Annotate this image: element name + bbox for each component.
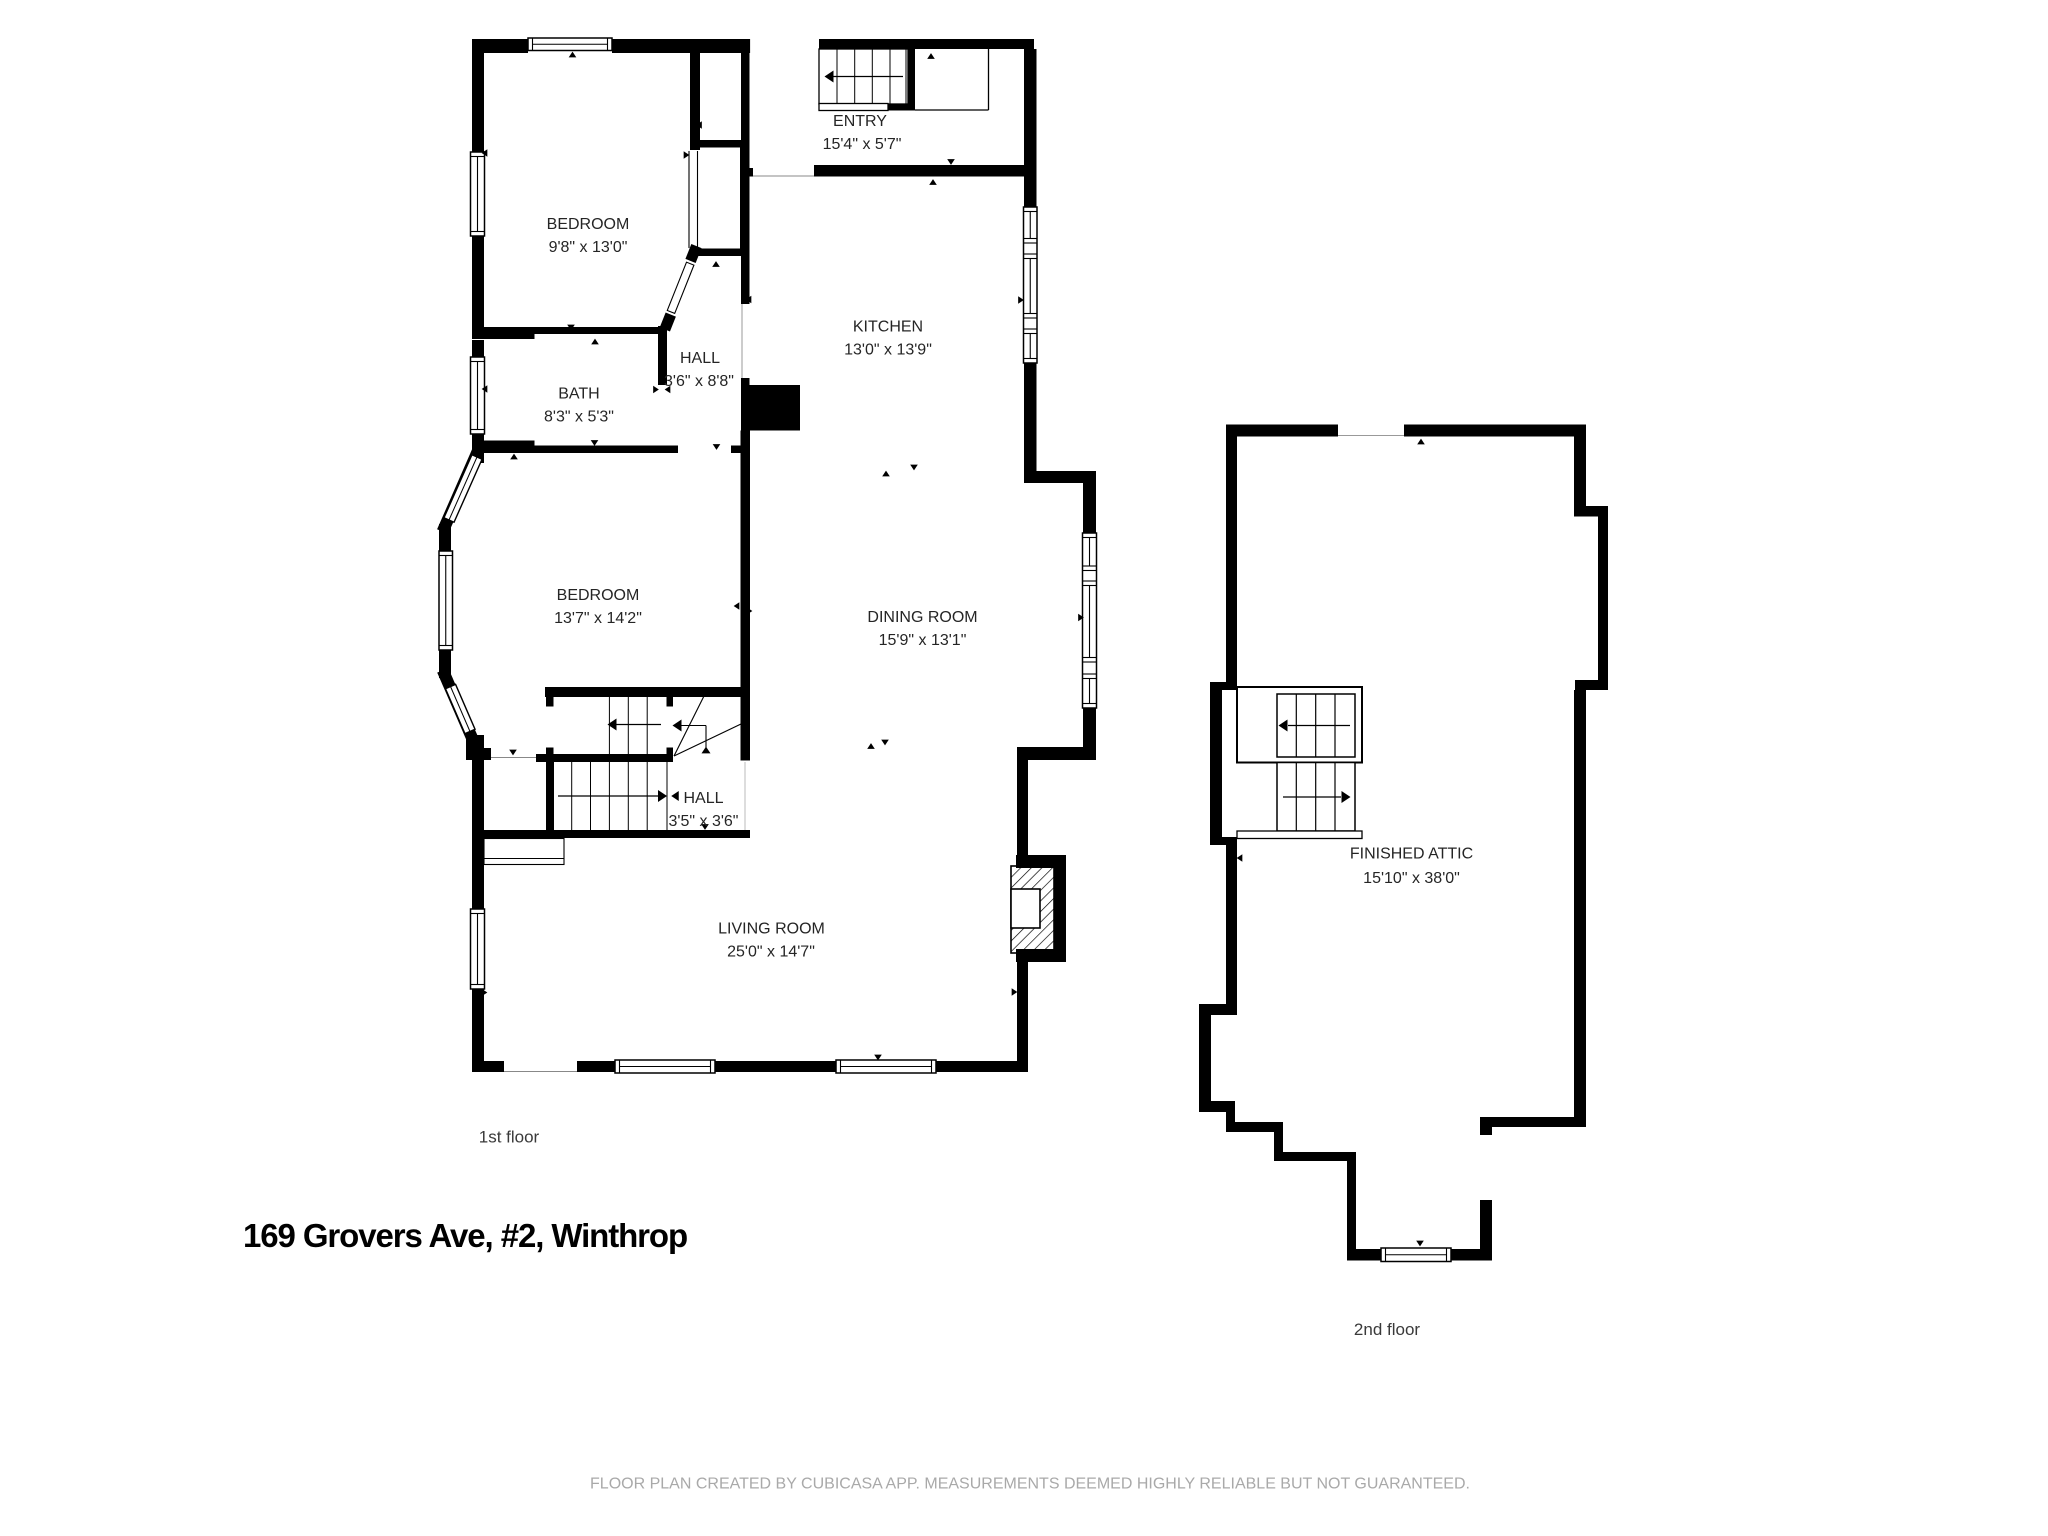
- svg-text:2nd floor: 2nd floor: [1354, 1320, 1420, 1339]
- svg-text:1st floor: 1st floor: [479, 1128, 540, 1147]
- svg-text:15'9" x 13'1": 15'9" x 13'1": [879, 632, 967, 649]
- svg-text:15'4" x 5'7": 15'4" x 5'7": [823, 136, 902, 153]
- svg-text:HALL: HALL: [680, 350, 720, 367]
- svg-text:169 Grovers Ave, #2, Winthrop: 169 Grovers Ave, #2, Winthrop: [243, 1217, 687, 1254]
- svg-text:LIVING ROOM: LIVING ROOM: [718, 921, 825, 938]
- svg-text:KITCHEN: KITCHEN: [853, 319, 923, 336]
- svg-text:HALL: HALL: [683, 790, 723, 807]
- svg-text:BATH: BATH: [558, 386, 599, 403]
- svg-text:ENTRY: ENTRY: [833, 113, 887, 130]
- svg-text:FINISHED ATTIC: FINISHED ATTIC: [1350, 846, 1473, 863]
- svg-text:8'3" x 5'3": 8'3" x 5'3": [544, 409, 614, 426]
- svg-text:BEDROOM: BEDROOM: [547, 216, 630, 233]
- svg-text:3'5" x 3'6": 3'5" x 3'6": [669, 813, 739, 830]
- svg-text:25'0" x 14'7": 25'0" x 14'7": [727, 944, 815, 961]
- svg-text:BEDROOM: BEDROOM: [557, 587, 640, 604]
- svg-text:FLOOR PLAN CREATED BY CUBICASA: FLOOR PLAN CREATED BY CUBICASA APP. MEAS…: [590, 1476, 1470, 1493]
- svg-text:3'6" x 8'8": 3'6" x 8'8": [664, 373, 734, 390]
- svg-text:13'7" x 14'2": 13'7" x 14'2": [554, 610, 642, 627]
- svg-text:13'0" x 13'9": 13'0" x 13'9": [844, 342, 932, 359]
- svg-text:9'8" x 13'0": 9'8" x 13'0": [549, 239, 628, 256]
- svg-text:DINING ROOM: DINING ROOM: [867, 609, 977, 626]
- svg-text:15'10" x 38'0": 15'10" x 38'0": [1363, 870, 1460, 887]
